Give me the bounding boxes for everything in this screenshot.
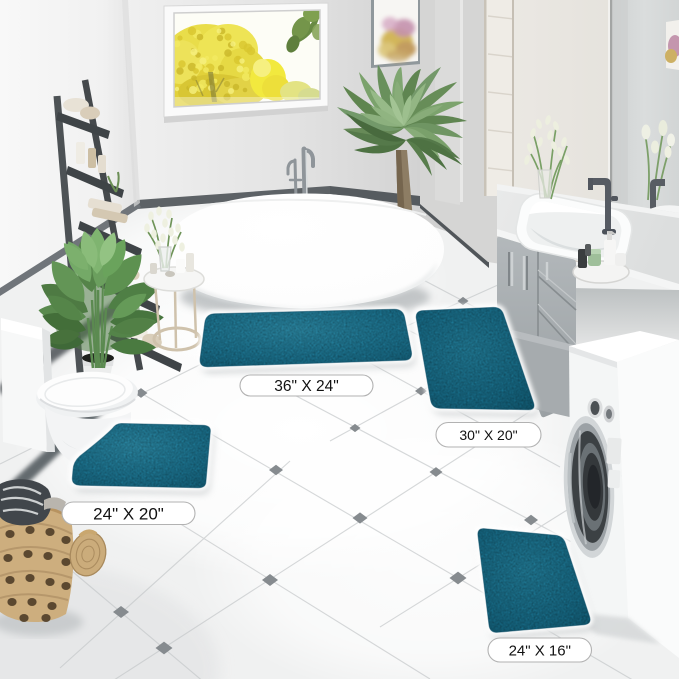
svg-text:36" X 24": 36" X 24" [274,378,338,395]
svg-text:24" X 16": 24" X 16" [509,642,571,659]
svg-text:30" X 20": 30" X 20" [459,427,517,443]
svg-text:24" X 20": 24" X 20" [93,504,164,523]
